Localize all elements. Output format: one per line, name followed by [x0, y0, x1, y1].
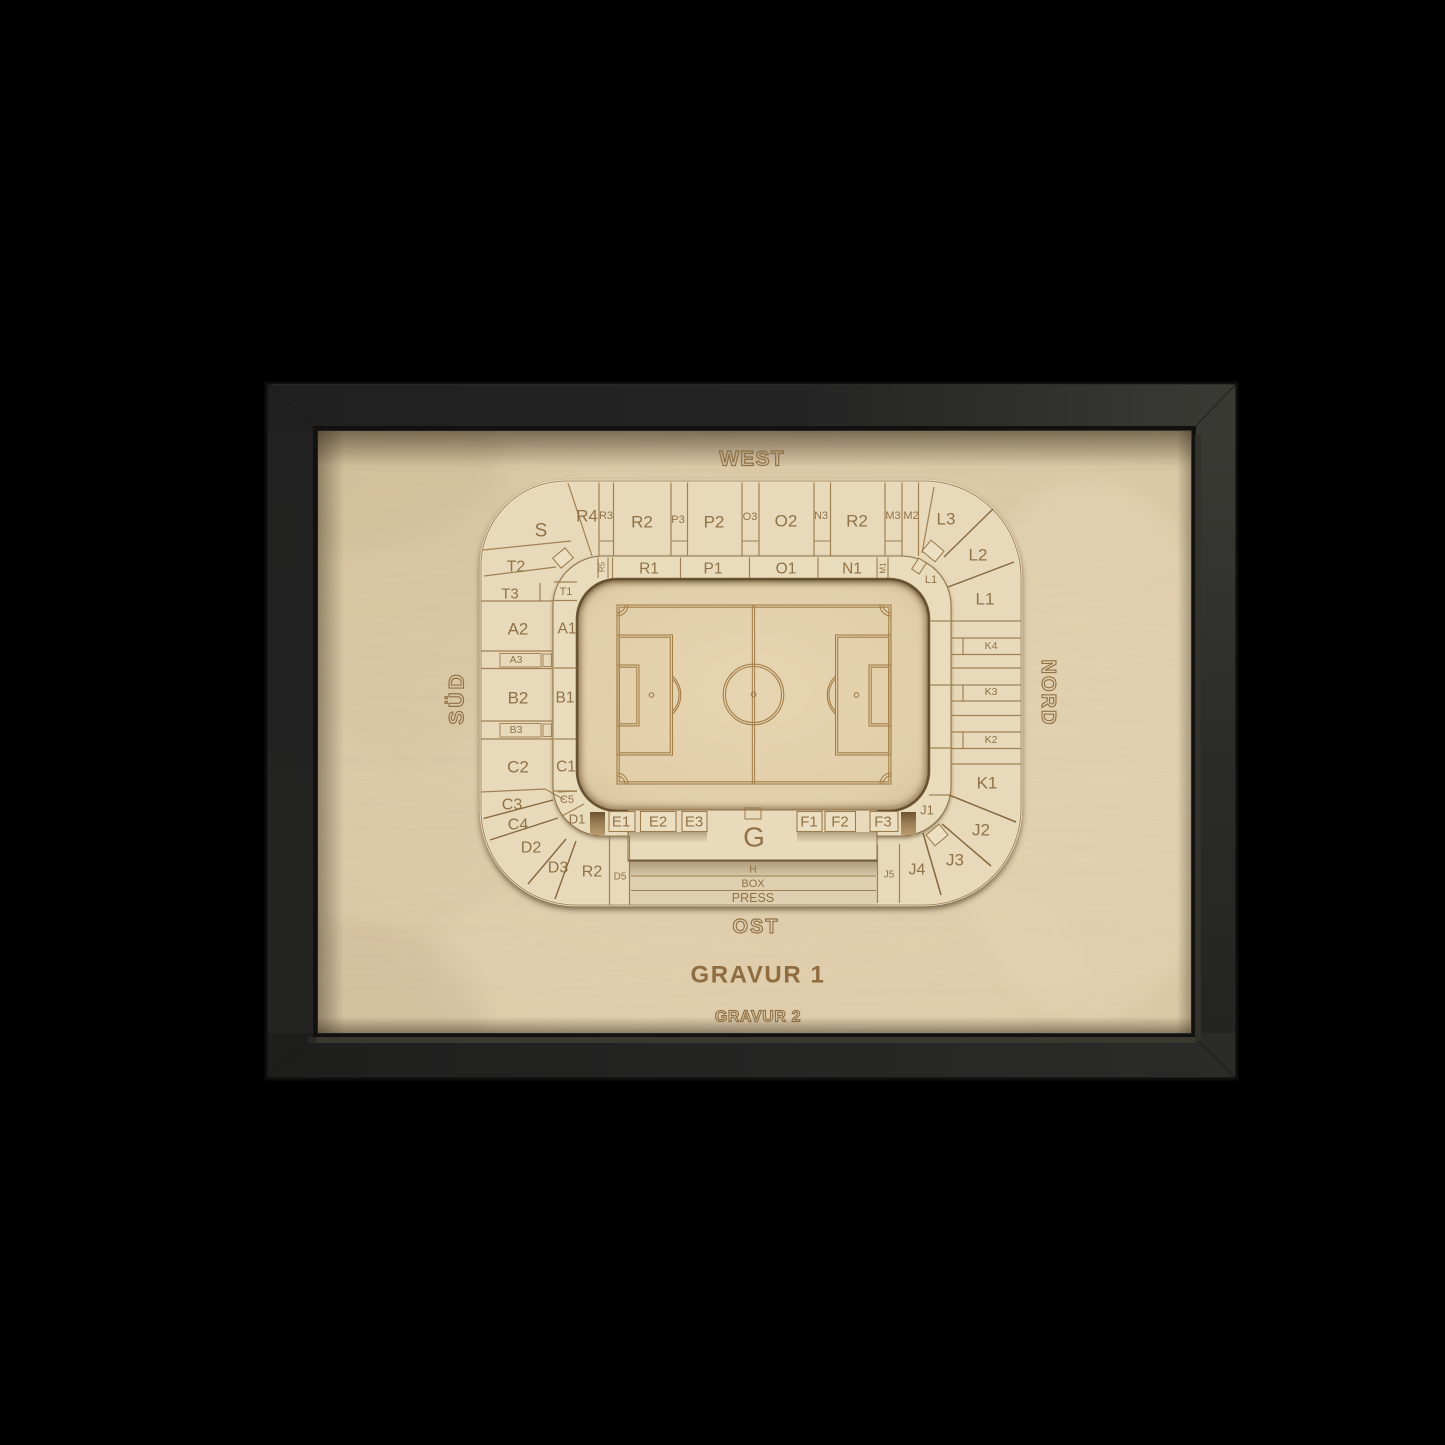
svg-text:J2: J2: [972, 821, 990, 840]
svg-text:J4: J4: [909, 862, 926, 879]
svg-text:BOX: BOX: [741, 878, 765, 890]
svg-text:L2: L2: [969, 546, 988, 565]
svg-text:F3: F3: [874, 814, 892, 831]
svg-text:T1: T1: [560, 586, 573, 598]
svg-text:P3: P3: [671, 514, 684, 526]
svg-text:A3: A3: [510, 654, 523, 666]
svg-text:R4: R4: [576, 507, 598, 526]
svg-text:C5: C5: [560, 794, 574, 806]
svg-text:B2: B2: [508, 689, 529, 708]
svg-text:O1: O1: [776, 561, 797, 578]
svg-text:K2: K2: [985, 734, 998, 746]
svg-text:O3: O3: [743, 511, 758, 523]
svg-text:SÜD: SÜD: [446, 671, 469, 724]
svg-text:B1: B1: [556, 690, 575, 707]
svg-text:F2: F2: [831, 814, 849, 831]
svg-text:D2: D2: [521, 840, 542, 857]
svg-text:S: S: [535, 521, 548, 542]
svg-text:J1: J1: [920, 803, 934, 818]
svg-text:P2: P2: [704, 513, 725, 532]
svg-text:C2: C2: [507, 758, 529, 777]
svg-text:O2: O2: [775, 512, 798, 531]
svg-text:P1: P1: [704, 561, 723, 578]
svg-text:NORD: NORD: [1037, 660, 1059, 727]
svg-text:K3: K3: [985, 686, 998, 698]
svg-text:E3: E3: [685, 814, 703, 831]
svg-text:J3: J3: [946, 851, 964, 870]
svg-text:C4: C4: [508, 817, 529, 834]
svg-text:A1: A1: [558, 621, 577, 638]
svg-text:L1: L1: [925, 574, 937, 586]
svg-text:R2: R2: [846, 512, 868, 531]
svg-text:L3: L3: [937, 510, 956, 529]
svg-text:D5: D5: [614, 872, 627, 883]
svg-text:PRESS: PRESS: [732, 891, 774, 905]
svg-text:T2: T2: [507, 559, 526, 576]
svg-text:J5: J5: [884, 870, 895, 881]
svg-text:M1: M1: [879, 562, 888, 574]
svg-text:M2: M2: [903, 510, 918, 522]
svg-text:GRAVUR 2: GRAVUR 2: [715, 1009, 801, 1026]
svg-text:K4: K4: [985, 640, 998, 652]
svg-text:F1: F1: [800, 814, 818, 831]
svg-text:E2: E2: [649, 814, 667, 831]
svg-text:E1: E1: [612, 814, 630, 831]
svg-text:L1: L1: [976, 590, 995, 609]
svg-text:C3: C3: [502, 797, 523, 814]
svg-text:R2: R2: [582, 864, 603, 881]
svg-text:M3: M3: [885, 510, 900, 522]
svg-text:R2: R2: [631, 513, 653, 532]
svg-text:N3: N3: [814, 510, 828, 522]
svg-text:R1: R1: [639, 561, 659, 578]
svg-text:R5: R5: [598, 561, 607, 572]
svg-text:R3: R3: [599, 510, 613, 522]
svg-text:B3: B3: [510, 724, 523, 736]
svg-text:D3: D3: [548, 860, 569, 877]
svg-text:OST: OST: [732, 916, 779, 938]
svg-text:C1: C1: [556, 759, 576, 776]
svg-text:H: H: [749, 865, 756, 876]
svg-text:T3: T3: [501, 586, 519, 603]
svg-text:N1: N1: [842, 561, 862, 578]
svg-text:G: G: [743, 822, 765, 853]
svg-text:K1: K1: [977, 774, 998, 793]
svg-text:GRAVUR 1: GRAVUR 1: [690, 962, 825, 989]
svg-text:A2: A2: [508, 620, 529, 639]
svg-text:WEST: WEST: [719, 448, 784, 471]
svg-text:D1: D1: [569, 812, 586, 827]
